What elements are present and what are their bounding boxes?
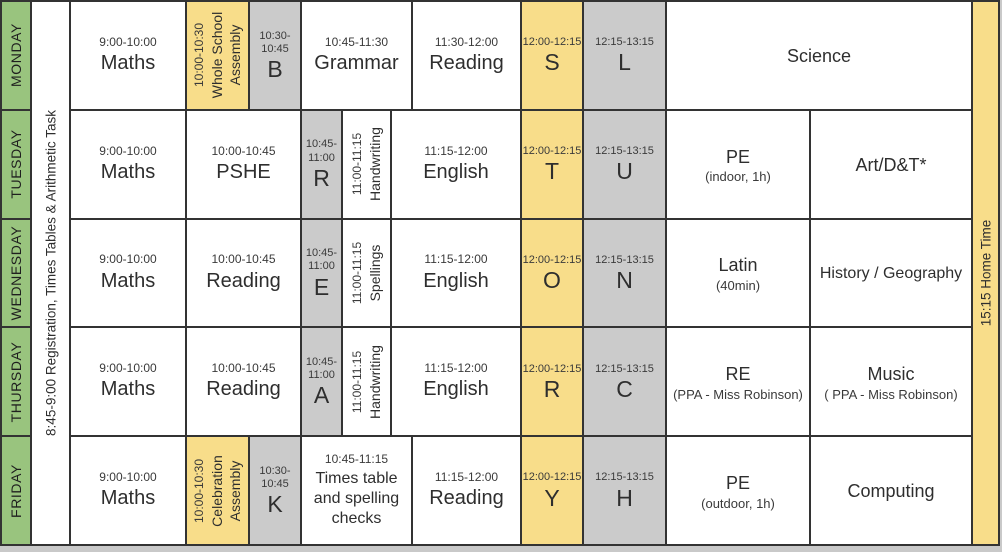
- cell-time: 12:00-12:15: [523, 471, 582, 484]
- cell-label: History / Geography: [820, 264, 962, 284]
- vertical-cell-text: 10:00-10:30Whole SchoolAssembly: [192, 4, 244, 106]
- cell-label: Art/D&T*: [855, 154, 926, 177]
- cell-time: 12:15-13:15: [595, 363, 654, 376]
- cell-label: PE: [726, 472, 750, 495]
- cell-label: Reading: [206, 377, 281, 402]
- cell-time: 10:45-11:00: [302, 138, 341, 164]
- cell-time: 12:15-13:15: [595, 254, 654, 267]
- cell-friday-y: 12:00-12:15Y: [522, 437, 582, 544]
- cell-time: 11:00-11:15: [350, 222, 366, 324]
- cell-time: 10:30-10:45: [250, 30, 300, 56]
- cell-label: C: [616, 377, 633, 401]
- day-label-friday: FRIDAY: [2, 437, 30, 544]
- cell-label: A: [314, 383, 329, 407]
- cell-label: Music: [867, 363, 914, 386]
- cell-time: 10:45-11:00: [302, 247, 341, 273]
- day-label-thursday: THURSDAY: [2, 328, 30, 435]
- cell-time: 12:00-12:15: [523, 254, 582, 267]
- cell-subtitle: (outdoor, 1h): [701, 496, 775, 512]
- cell-label: English: [423, 377, 489, 402]
- cell-label: O: [543, 268, 561, 292]
- cell-time: 9:00-10:00: [99, 252, 156, 266]
- cell-friday-pe: PE(outdoor, 1h): [667, 437, 809, 544]
- cell-thursday-re: RE(PPA - Miss Robinson): [667, 328, 809, 435]
- cell-label: PE: [726, 146, 750, 169]
- cell-time: 11:15-12:00: [435, 470, 498, 484]
- cell-time: 12:15-13:15: [595, 36, 654, 49]
- cell-monday-b: 10:30-10:45B: [250, 2, 300, 109]
- cell-label: Reading: [206, 269, 281, 294]
- cell-label: PSHE: [216, 160, 270, 185]
- day-label-wednesday: WEDNESDAY: [2, 220, 30, 327]
- cell-label: T: [545, 159, 559, 183]
- cell-wednesday-maths: 9:00-10:00Maths: [71, 220, 185, 327]
- cell-time: 11:00-11:15: [350, 113, 366, 215]
- cell-friday-times-table-and-spelling-checks: 10:45-11:15Times table and spelling chec…: [302, 437, 411, 544]
- cell-tuesday-u: 12:15-13:15U: [584, 111, 665, 218]
- cell-time: 10:45-11:00: [302, 356, 341, 382]
- cell-time: 10:00-10:45: [211, 144, 275, 158]
- cell-time: 11:15-12:00: [424, 144, 487, 158]
- cell-thursday-english: 11:15-12:00English: [392, 328, 520, 435]
- cell-tuesday-pe: PE(indoor, 1h): [667, 111, 809, 218]
- cell-monday-whole-school-assembly: 10:00-10:30Whole SchoolAssembly: [187, 2, 248, 109]
- cell-tuesday-r: 10:45-11:00R: [302, 111, 341, 218]
- cell-time: 12:15-13:15: [595, 471, 654, 484]
- cell-wednesday-history-geography: History / Geography: [811, 220, 971, 327]
- day-label-tuesday: TUESDAY: [2, 111, 30, 218]
- cell-label: Y: [544, 486, 559, 510]
- cell-monday-maths: 9:00-10:00Maths: [71, 2, 185, 109]
- cell-monday-science: Science: [667, 2, 971, 109]
- registration-column: 8:45-9:00 Registration, Times Tables & A…: [32, 2, 69, 544]
- cell-time: 11:00-11:15: [350, 331, 366, 433]
- cell-time: 11:15-12:00: [424, 361, 487, 375]
- cell-label: Reading: [429, 51, 504, 76]
- cell-monday-grammar: 10:45-11:30Grammar: [302, 2, 411, 109]
- cell-friday-h: 12:15-13:15H: [584, 437, 665, 544]
- home-time-label: 15:15 Home Time: [978, 10, 993, 536]
- cell-label: Grammar: [314, 51, 398, 76]
- cell-wednesday-latin: Latin(40min): [667, 220, 809, 327]
- cell-time: 10:30-10:45: [250, 465, 300, 491]
- cell-subtitle: (PPA - Miss Robinson): [673, 387, 803, 403]
- cell-time: 10:00-10:30: [192, 440, 208, 542]
- cell-label: English: [423, 160, 489, 185]
- cell-label-line: Assembly: [225, 440, 243, 542]
- vertical-cell-text: 10:00-10:30CelebrationAssembly: [192, 440, 244, 542]
- home-time-column: 15:15 Home Time: [973, 2, 998, 544]
- cell-friday-reading: 11:15-12:00Reading: [413, 437, 520, 544]
- cell-time: 12:15-13:15: [595, 145, 654, 158]
- cell-thursday-maths: 9:00-10:00Maths: [71, 328, 185, 435]
- cell-tuesday-english: 11:15-12:00English: [392, 111, 520, 218]
- cell-label: Maths: [101, 486, 155, 511]
- cell-time: 10:00-10:45: [211, 361, 275, 375]
- cell-time: 12:00-12:15: [523, 145, 582, 158]
- cell-label: H: [616, 486, 633, 510]
- cell-label: L: [618, 50, 631, 74]
- day-label: THURSDAY: [8, 331, 24, 433]
- cell-label-line: Handwriting: [365, 113, 383, 215]
- cell-label: R: [544, 377, 561, 401]
- cell-label: Maths: [101, 51, 155, 76]
- cell-label: R: [313, 166, 330, 190]
- cell-label: Science: [787, 45, 851, 68]
- cell-thursday-music: Music( PPA - Miss Robinson): [811, 328, 971, 435]
- cell-friday-computing: Computing: [811, 437, 971, 544]
- cell-time: 10:45-11:30: [325, 35, 388, 49]
- cell-thursday-reading: 10:00-10:45Reading: [187, 328, 300, 435]
- cell-wednesday-o: 12:00-12:15O: [522, 220, 582, 327]
- cell-label: Maths: [101, 377, 155, 402]
- cell-label: B: [267, 57, 282, 81]
- cell-time: 9:00-10:00: [99, 144, 156, 158]
- cell-friday-celebration-assembly: 10:00-10:30CelebrationAssembly: [187, 437, 248, 544]
- vertical-cell-text: 11:00-11:15Handwriting: [350, 331, 384, 433]
- cell-monday-reading: 11:30-12:00Reading: [413, 2, 520, 109]
- cell-subtitle: ( PPA - Miss Robinson): [824, 387, 957, 403]
- cell-time: 12:00-12:15: [523, 36, 582, 49]
- day-label: WEDNESDAY: [8, 222, 24, 324]
- cell-time: 9:00-10:00: [99, 361, 156, 375]
- day-label: MONDAY: [8, 4, 24, 106]
- cell-label-line: Spellings: [365, 222, 383, 324]
- cell-label-line: Handwriting: [365, 331, 383, 433]
- vertical-cell-text: 11:00-11:15Handwriting: [350, 113, 384, 215]
- cell-wednesday-english: 11:15-12:00English: [392, 220, 520, 327]
- cell-thursday-c: 12:15-13:15C: [584, 328, 665, 435]
- cell-friday-maths: 9:00-10:00Maths: [71, 437, 185, 544]
- cell-thursday-handwriting: 11:00-11:15Handwriting: [343, 328, 390, 435]
- cell-label: Times table and spelling checks: [302, 469, 411, 529]
- cell-label: N: [616, 268, 633, 292]
- cell-time: 9:00-10:00: [99, 470, 156, 484]
- cell-time: 9:00-10:00: [99, 35, 156, 49]
- cell-label: K: [267, 492, 282, 516]
- cell-wednesday-reading: 10:00-10:45Reading: [187, 220, 300, 327]
- cell-tuesday-art-d-t: Art/D&T*: [811, 111, 971, 218]
- cell-friday-k: 10:30-10:45K: [250, 437, 300, 544]
- cell-label: Reading: [429, 486, 504, 511]
- cell-tuesday-maths: 9:00-10:00Maths: [71, 111, 185, 218]
- cell-time: 11:30-12:00: [435, 35, 498, 49]
- cell-label: E: [314, 275, 329, 299]
- cell-label: English: [423, 269, 489, 294]
- cell-wednesday-n: 12:15-13:15N: [584, 220, 665, 327]
- vertical-cell-text: 11:00-11:15Spellings: [350, 222, 384, 324]
- cell-thursday-r: 12:00-12:15R: [522, 328, 582, 435]
- day-label-monday: MONDAY: [2, 2, 30, 109]
- timetable-grid: 8:45-9:00 Registration, Times Tables & A…: [0, 0, 1000, 546]
- day-label: FRIDAY: [8, 440, 24, 542]
- cell-thursday-a: 10:45-11:00A: [302, 328, 341, 435]
- cell-tuesday-pshe: 10:00-10:45PSHE: [187, 111, 300, 218]
- cell-monday-s: 12:00-12:15S: [522, 2, 582, 109]
- cell-subtitle: (40min): [716, 278, 760, 294]
- cell-label: S: [544, 50, 559, 74]
- cell-time: 10:45-11:15: [325, 452, 388, 466]
- cell-tuesday-handwriting: 11:00-11:15Handwriting: [343, 111, 390, 218]
- cell-subtitle: (indoor, 1h): [705, 169, 771, 185]
- cell-wednesday-spellings: 11:00-11:15Spellings: [343, 220, 390, 327]
- cell-wednesday-e: 10:45-11:00E: [302, 220, 341, 327]
- cell-monday-l: 12:15-13:15L: [584, 2, 665, 109]
- registration-label: 8:45-9:00 Registration, Times Tables & A…: [43, 10, 58, 536]
- cell-label: Latin: [718, 254, 757, 277]
- cell-time: 10:00-10:30: [192, 4, 208, 106]
- day-label: TUESDAY: [8, 113, 24, 215]
- cell-label: U: [616, 159, 633, 183]
- timetable: 8:45-9:00 Registration, Times Tables & A…: [0, 0, 1002, 552]
- cell-label: RE: [725, 363, 750, 386]
- cell-time: 11:15-12:00: [424, 252, 487, 266]
- cell-label-line: Assembly: [225, 4, 243, 106]
- cell-label-line: Celebration: [207, 440, 225, 542]
- cell-tuesday-t: 12:00-12:15T: [522, 111, 582, 218]
- cell-time: 10:00-10:45: [211, 252, 275, 266]
- cell-label: Computing: [847, 480, 934, 503]
- cell-label-line: Whole School: [207, 4, 225, 106]
- cell-label: Maths: [101, 160, 155, 185]
- cell-label: Maths: [101, 269, 155, 294]
- cell-time: 12:00-12:15: [523, 363, 582, 376]
